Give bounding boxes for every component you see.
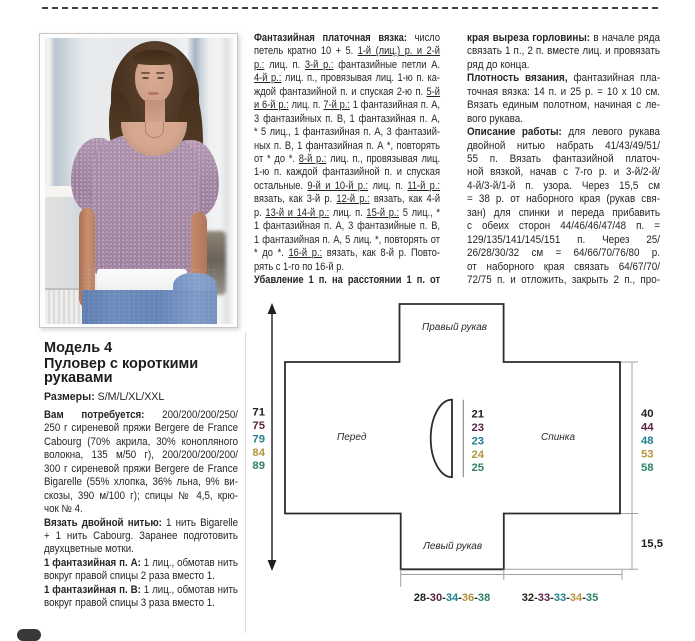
svg-text:21: 21 [472, 409, 485, 421]
svg-text:23: 23 [472, 422, 485, 434]
svg-text:Перед: Перед [337, 432, 367, 443]
svg-text:32-33-33-34-35: 32-33-33-34-35 [522, 592, 599, 604]
svg-text:48: 48 [641, 435, 654, 447]
svg-text:40: 40 [641, 408, 654, 420]
svg-text:Левый рукав: Левый рукав [422, 541, 482, 552]
svg-text:44: 44 [641, 422, 654, 434]
svg-text:75: 75 [252, 420, 265, 432]
svg-text:28-30-34-36-38: 28-30-34-36-38 [414, 592, 491, 604]
svg-text:23: 23 [472, 435, 485, 447]
svg-text:Правый рукав: Правый рукав [422, 322, 487, 333]
svg-text:79: 79 [252, 433, 265, 445]
svg-text:25: 25 [472, 462, 485, 474]
svg-text:89: 89 [252, 460, 265, 472]
svg-text:15,5: 15,5 [641, 538, 663, 550]
svg-text:84: 84 [252, 447, 265, 459]
svg-text:71: 71 [252, 407, 265, 419]
svg-text:24: 24 [472, 449, 485, 461]
svg-text:53: 53 [641, 449, 654, 461]
svg-text:Спинка: Спинка [541, 432, 576, 443]
svg-text:58: 58 [641, 462, 654, 474]
